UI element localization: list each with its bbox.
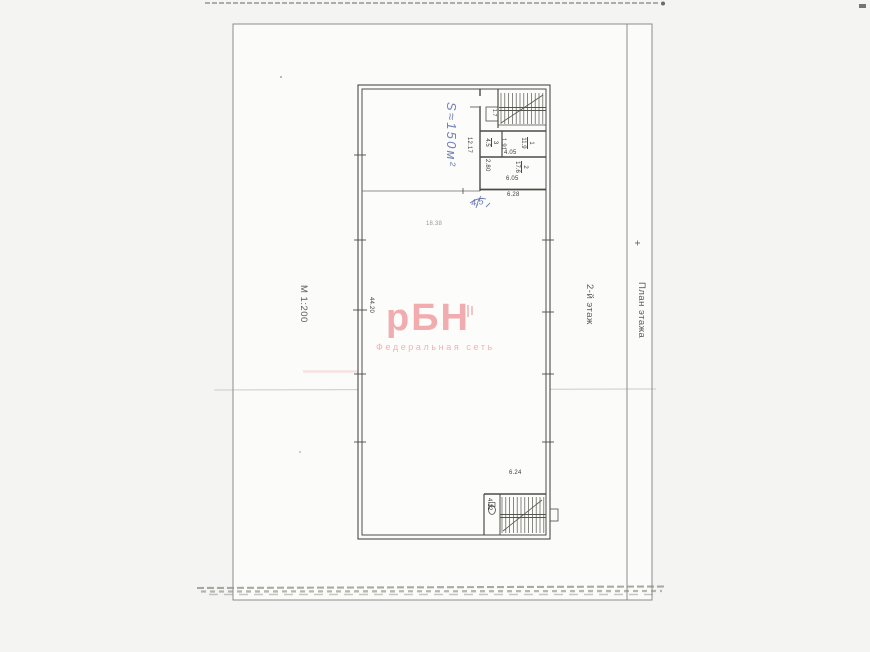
hall-area-label: 18.38 [426,221,442,227]
room-number: 1 [528,141,534,144]
dim-stair-width: 6.24 [509,470,521,476]
scale-label: М 1:200 [298,285,308,341]
room-label-1: 1 11.9 [521,134,535,152]
handwritten-small-note: 4,5 [470,196,484,208]
title-column-label: План этажа [636,282,646,346]
room-area: 17.6 [515,161,523,173]
scan-speck [661,2,665,6]
room-number: 3 [492,141,498,144]
watermark-brand: рБН [386,299,470,337]
scanned-floorplan-page: рБН Федеральная сеть М 1:200 2-й этаж Пл… [0,0,870,652]
scan-speck [859,4,866,8]
dim-block-width: 6.28 [507,192,519,198]
room-number: 2 [522,165,528,168]
closet-area-label: 1.7 [491,109,497,121]
room-label-2: 2 17.6 [515,158,529,176]
dim-room2-height: 2.80 [484,159,490,177]
scan-speck [280,76,282,78]
watermark-tagline: Федеральная сеть [376,342,495,352]
dim-stair-lobby: 4.12 [486,498,492,514]
dim-hall-length: 44.20 [368,297,374,317]
dim-room2-width: 6.05 [506,176,518,182]
scan-speck [299,451,301,453]
room-label-3: 3 4.5 [485,135,499,150]
dim-left-inner: 12.17 [466,137,472,159]
dim-room1-width: 4.05 [504,150,516,156]
room-area: 4.5 [485,138,493,146]
floor-label: 2-й этаж [584,284,594,334]
room-area: 11.9 [521,137,529,148]
handwritten-area-note: S≈150м² [444,102,459,192]
